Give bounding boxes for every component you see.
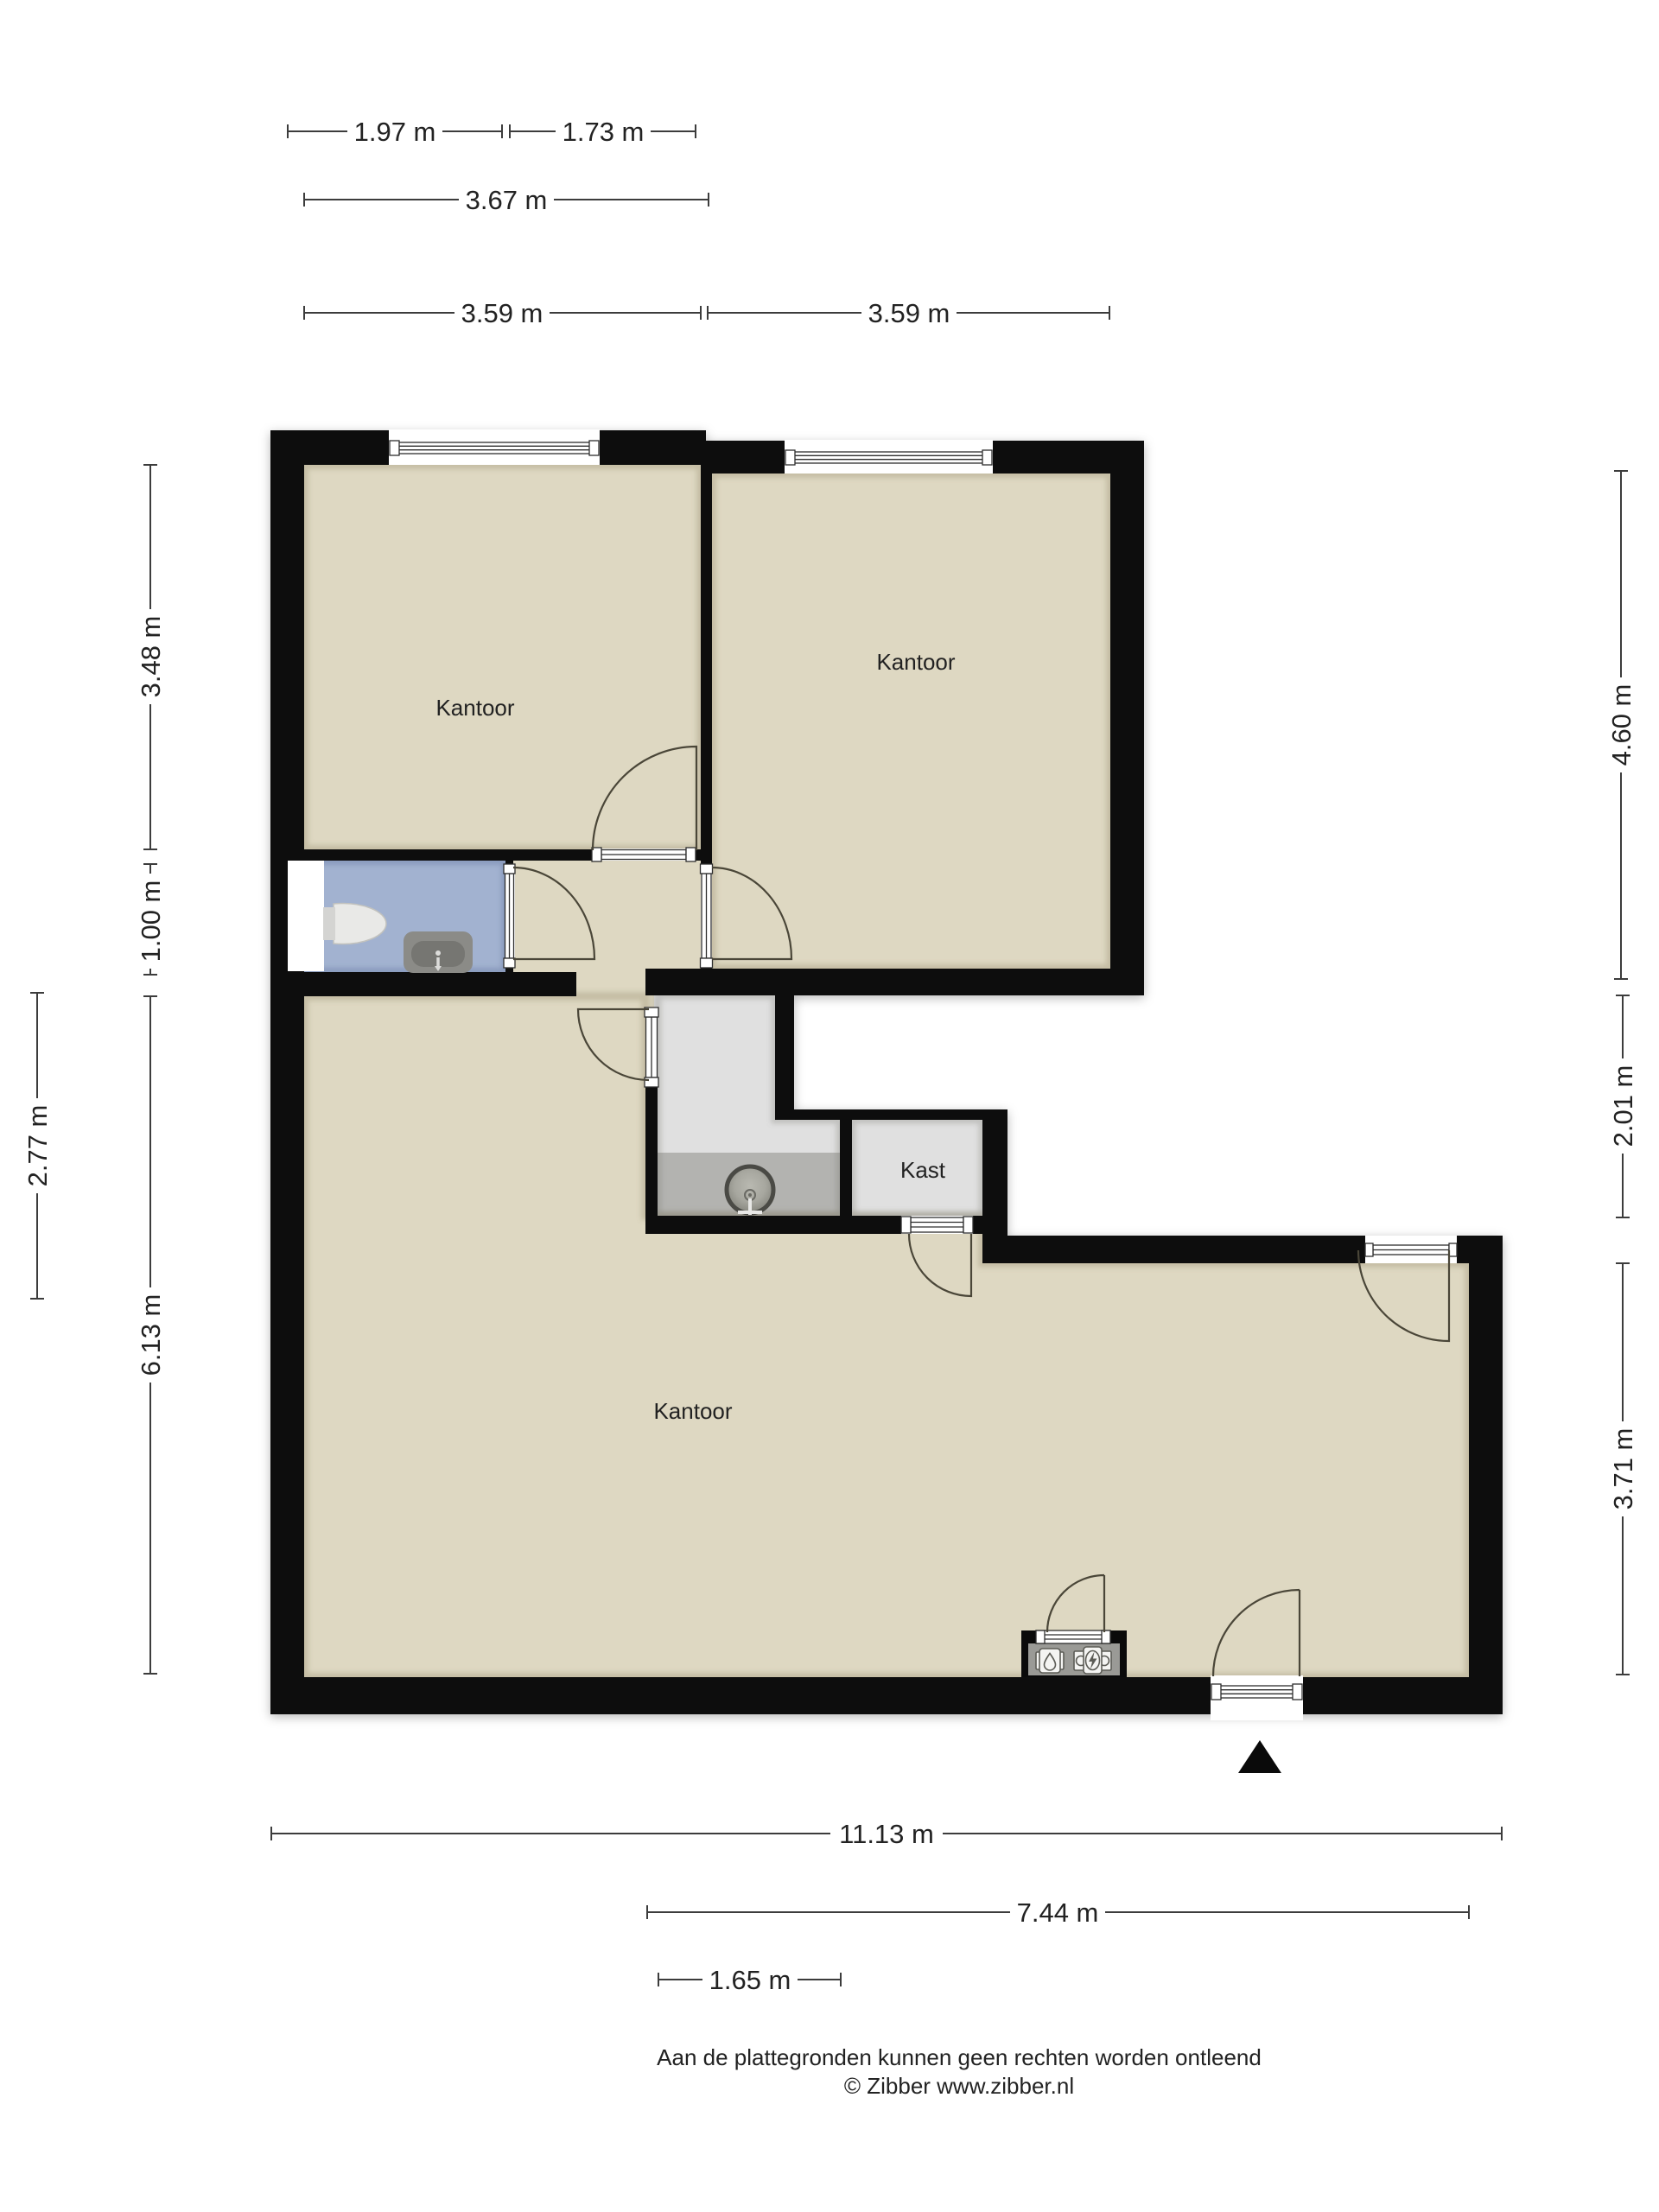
svg-text:4.60 m: 4.60 m — [1606, 684, 1637, 766]
svg-text:© Zibber www.zibber.nl: © Zibber www.zibber.nl — [844, 2073, 1074, 2099]
svg-text:1.65 m: 1.65 m — [709, 1965, 791, 1995]
svg-text:Kantoor: Kantoor — [876, 649, 955, 675]
svg-text:3.59 m: 3.59 m — [461, 298, 543, 328]
svg-text:3.48 m: 3.48 m — [136, 616, 166, 698]
svg-text:3.59 m: 3.59 m — [868, 298, 950, 328]
svg-text:Aan de plattegronden kunnen ge: Aan de plattegronden kunnen geen rechten… — [657, 2044, 1262, 2070]
svg-text:3.67 m: 3.67 m — [466, 185, 548, 215]
svg-text:3.71 m: 3.71 m — [1608, 1428, 1638, 1510]
svg-text:2.77 m: 2.77 m — [22, 1105, 53, 1187]
svg-text:1.73 m: 1.73 m — [563, 117, 645, 147]
svg-text:6.13 m: 6.13 m — [136, 1294, 166, 1376]
svg-text:Kast: Kast — [900, 1157, 946, 1183]
svg-text:1.97 m: 1.97 m — [354, 117, 436, 147]
svg-text:Kantoor: Kantoor — [653, 1398, 732, 1424]
svg-text:Kantoor: Kantoor — [435, 695, 514, 721]
svg-text:7.44 m: 7.44 m — [1017, 1897, 1099, 1928]
svg-text:2.01 m: 2.01 m — [1608, 1065, 1638, 1147]
svg-text:1.00 m: 1.00 m — [136, 880, 166, 963]
svg-text:11.13 m: 11.13 m — [839, 1819, 934, 1849]
